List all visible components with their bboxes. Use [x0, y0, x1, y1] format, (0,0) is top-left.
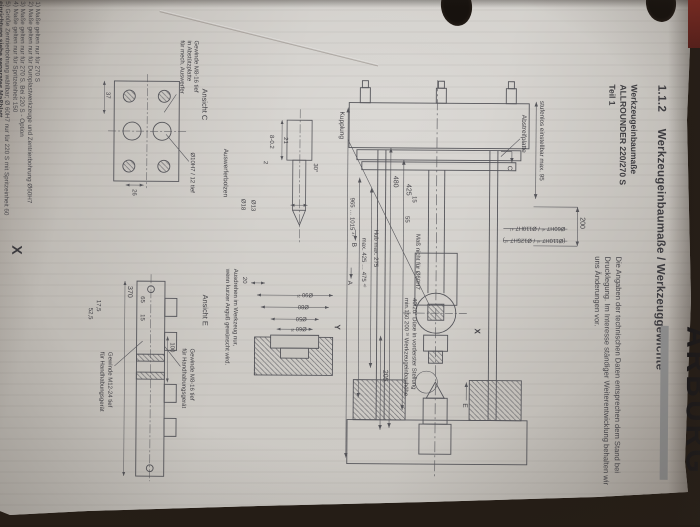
red-divider-tab [688, 0, 700, 48]
gewinde-c-line1: Gewinde M8-16 tief [192, 40, 198, 92]
sheet-header-line3: Teil 1 [605, 84, 617, 249]
technical-drawing: 200 stufenlos einstellbar max. 95 Abstre… [46, 35, 597, 484]
datum-b: B [350, 243, 357, 247]
dim-52-5: 52,5 [87, 308, 93, 320]
ansicht-e-view [114, 274, 181, 483]
dim-2: 2 [262, 161, 268, 165]
main-section-view [347, 80, 530, 477]
ansicht-c-title: Ansicht C [200, 89, 209, 121]
section-mark-x: X [9, 245, 25, 254]
note-ausdrehen-2: wenn kurzer Anguß gewünscht wird. [223, 268, 230, 366]
sheet-header-line2: ALLROUNDER 220/270 S [616, 84, 628, 249]
paper-top-edge-shadow [0, 0, 700, 8]
dim-18: Ø18 [240, 199, 246, 211]
paper-right-edge-shadow [668, 0, 700, 525]
dia-80: Ø80 [298, 303, 309, 309]
dia-centering-1: Ø60H7 ⁴⁾ / Ø110H7 ⁴⁾ [509, 225, 565, 232]
dia-90: Ø90 ²⁾ [296, 291, 313, 298]
gewinde-m12-line1: Gewinde M12-24 tief [106, 352, 112, 408]
section-number: 1.1.2 [655, 85, 667, 113]
dim-21: 21 [282, 137, 288, 144]
label-abstreifplatte: Abstreifplatte [520, 115, 527, 153]
dim-30deg: 30° [312, 163, 318, 173]
dim-20: 20 [241, 277, 247, 284]
sheet-header-line1: Werkzeugeinbaumaße [627, 85, 639, 250]
dim-15: 15 [411, 196, 417, 203]
dim-65: 65 [139, 296, 145, 303]
dia-10h7: Ø10H7 / 12 tief [189, 152, 195, 193]
photo-of-technical-sheet: { "page": { "title_number": "1.1.2", "ti… [0, 0, 700, 525]
note-mass-hint: Maß nicht für Ø60H7 [414, 234, 420, 290]
dim-480: 480 [392, 176, 399, 188]
gewinde-c-line3: für mech. Auswerfer [178, 40, 184, 93]
dim-200: 200 [578, 217, 585, 229]
ansicht-e-labels: Ansicht E 370 100 65 15 17,5 52,5 Gewind… [86, 286, 210, 413]
dim-26: 26 [131, 189, 137, 196]
note-ausdrehen-1: Ausdrehen im Werkzeug nur, [232, 269, 239, 347]
note-duese-2: min.150 200 ³⁾ Werkzeugeinbauhöhe [402, 298, 410, 397]
dim-425: 425 [405, 184, 412, 196]
gewinde-m8-line2: für Handhabungsgerät [180, 348, 186, 408]
dia-50: Ø50 [296, 315, 307, 321]
document-content-rotated: 1.1.2 Werkzeugeinbaumaße / Werkzeuggewic… [0, 0, 695, 525]
intro-line1: Die Angaben der technischen Daten entspr… [611, 256, 623, 526]
dim-55: 55 [403, 216, 409, 223]
datum-e: E [461, 403, 468, 408]
detail-y-label: Y [333, 324, 342, 330]
datum-a: A [346, 281, 353, 286]
sheet-header: Werkzeugeinbaumaße ALLROUNDER 220/270 S … [605, 84, 639, 249]
dim-hub: Hub max. 275 [372, 230, 378, 268]
ansicht-c-labels: Ansicht C Ø10H7 / 12 tief Gewinde M8-16 … [104, 40, 210, 197]
ansicht-c-view [104, 74, 190, 189]
label-stufenlos: stufenlos einstellbar max. 95 [538, 101, 546, 181]
gewinde-m8-line1: Gewinde M8-16 tief [188, 348, 194, 400]
dim-15b: 15 [139, 314, 145, 321]
dim-370: 370 [126, 286, 133, 298]
dim-17-5: 17,5 [95, 300, 101, 312]
dia-centering-2: (Ø110H7 ⁴⁾ / Ø125H7 ⁴⁾) [503, 237, 566, 244]
detail-x-label: X [473, 328, 482, 334]
dim-8: 8-0.2 [268, 135, 274, 149]
dim-13: Ø13 [250, 200, 256, 212]
note-duese-1: 40/20° Düse in vorderster Stellung [410, 298, 417, 389]
dim-100: 100 [169, 342, 175, 353]
intro-line2: Drucklegung. Im Interesse ständiger Weit… [600, 256, 612, 526]
label-kupplung: Kupplung [338, 112, 345, 140]
dim-37: 37 [104, 92, 110, 99]
dim-965: 965 … 1015 ⁴⁾ [348, 198, 355, 237]
dia-60: Ø60 ²⁾ [290, 325, 307, 332]
gewinde-m12-line2: für Handhabungsgerät [98, 352, 104, 412]
ansicht-e-title: Ansicht E [201, 295, 210, 326]
gewinde-c-line2: in Abstützplatte [185, 40, 191, 81]
dim-max425: max. 425 … 475 ⁴⁾ [360, 238, 367, 288]
footnotes-block: 1) Maße gelten nur für 270 S 2) Maße gel… [0, 1, 41, 421]
dim-205: 205 [381, 370, 388, 382]
ejector-bolt-detail [281, 109, 312, 242]
datum-c: C [506, 166, 513, 171]
ejector-bolt-labels: 30° 21 8-0.2 2 Ø13 Ø18 Auswerferbolzen [222, 135, 319, 213]
label-auswerferbolzen: Auswerferbolzen [222, 149, 229, 198]
